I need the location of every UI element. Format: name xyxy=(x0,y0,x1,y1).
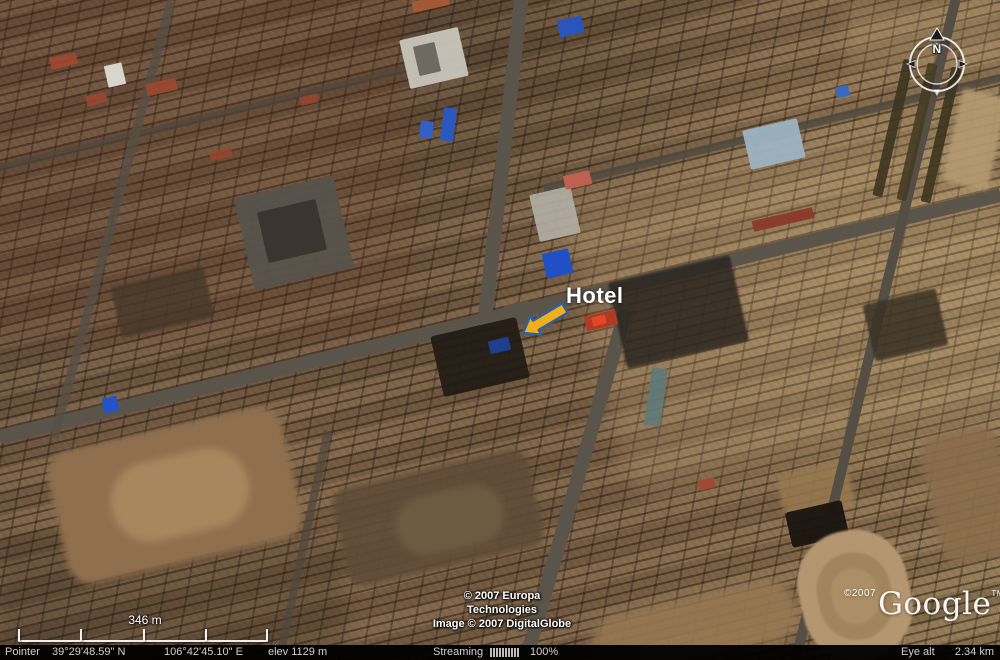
streaming-percent: 100% xyxy=(530,645,558,660)
streaming-progress-bars xyxy=(490,648,520,657)
streaming-bar xyxy=(505,648,507,657)
map-feature xyxy=(916,423,1000,568)
streaming-bar xyxy=(511,648,513,657)
streaming-bar xyxy=(502,648,504,657)
pointer-latitude: 39°29'48.59" N xyxy=(52,645,125,660)
map-feature xyxy=(440,107,457,141)
map-feature xyxy=(411,0,450,13)
logo-copyright: ©2007 xyxy=(844,588,876,599)
streaming-bar xyxy=(496,648,498,657)
pointer-longitude: 106°42'45.10" E xyxy=(164,645,243,660)
eye-altitude-value: 2.34 km xyxy=(952,645,994,660)
scale-bar-label: 346 m xyxy=(113,613,177,627)
google-watermark: ©2007GoogleTM xyxy=(844,586,1000,622)
imagery-attribution: © 2007 Europa Technologies Image © 2007 … xyxy=(428,589,576,631)
streaming-bar xyxy=(517,648,519,657)
scale-bar-tick xyxy=(18,629,20,641)
map-feature xyxy=(556,15,584,37)
compass-north-label: N xyxy=(933,42,942,56)
map-feature xyxy=(529,186,581,242)
map-feature xyxy=(477,0,529,327)
attribution-line2: Image © 2007 DigitalGlobe xyxy=(428,617,576,631)
streaming-bar xyxy=(508,648,510,657)
streaming-bar xyxy=(493,648,495,657)
attribution-line1: © 2007 Europa Technologies xyxy=(428,589,576,617)
compass-icon[interactable]: N xyxy=(905,27,969,97)
scale-bar-tick xyxy=(205,629,207,641)
streaming-label: Streaming xyxy=(433,645,483,660)
google-logo: Google xyxy=(878,586,991,622)
streaming-bar xyxy=(499,648,501,657)
status-bar: Pointer 39°29'48.59" N 106°42'45.10" E e… xyxy=(0,645,1000,660)
scale-bar-tick xyxy=(80,629,82,641)
eye-altitude-label: Eye alt xyxy=(901,645,935,660)
map-feature xyxy=(542,248,574,278)
scale-bar-tick xyxy=(143,629,145,641)
logo-trademark: TM xyxy=(991,589,1000,598)
map-feature xyxy=(697,477,716,491)
scale-bar-tick xyxy=(266,629,268,641)
streaming-bar xyxy=(514,648,516,657)
satellite-map-viewport[interactable]: Hotel N 346 m © 2007 Europa Technologies… xyxy=(0,0,1000,660)
streaming-bar xyxy=(490,648,492,657)
map-feature xyxy=(563,170,592,190)
pointer-elevation: elev 1129 m xyxy=(268,645,327,660)
map-feature xyxy=(835,85,850,99)
placemark-arrow-icon[interactable] xyxy=(513,300,573,340)
placemark-label-hotel[interactable]: Hotel xyxy=(566,283,624,309)
pointer-label: Pointer xyxy=(5,645,40,660)
map-feature xyxy=(419,120,434,139)
